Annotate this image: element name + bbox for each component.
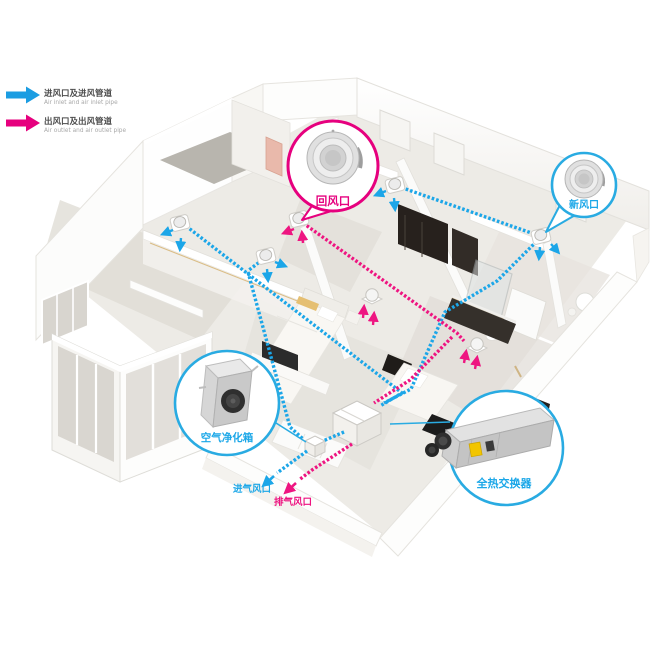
legend-exhaust-cn: 出风口及出风管道 bbox=[44, 116, 113, 127]
isometric-house-cutaway: 回风口 新风口 空气净化箱 bbox=[0, 0, 650, 656]
intake-port-label: 进气风口 bbox=[233, 483, 271, 495]
round-diffuser-photo bbox=[565, 160, 604, 198]
exhaust-port-label: 排气风口 bbox=[274, 496, 312, 508]
legend-exhaust-en: Air outlet and air outlet pipe bbox=[44, 128, 126, 134]
fresh-air-vent-label: 新风口 bbox=[569, 198, 599, 211]
duct-purifier-box bbox=[305, 436, 325, 457]
legend-supply-en: Air inlet and air inlet pipe bbox=[44, 100, 118, 106]
heat-exchanger-label: 全热交换器 bbox=[476, 476, 533, 490]
legend-supply-cn: 进风口及进风管道 bbox=[44, 88, 113, 99]
ventilation-system-diagram: 回风口 新风口 空气净化箱 bbox=[0, 0, 650, 656]
return-air-vent-label: 回风口 bbox=[316, 194, 351, 208]
pink-door bbox=[266, 137, 282, 176]
warning-sticker bbox=[469, 442, 482, 457]
air-purifier-label: 空气净化箱 bbox=[201, 431, 254, 444]
